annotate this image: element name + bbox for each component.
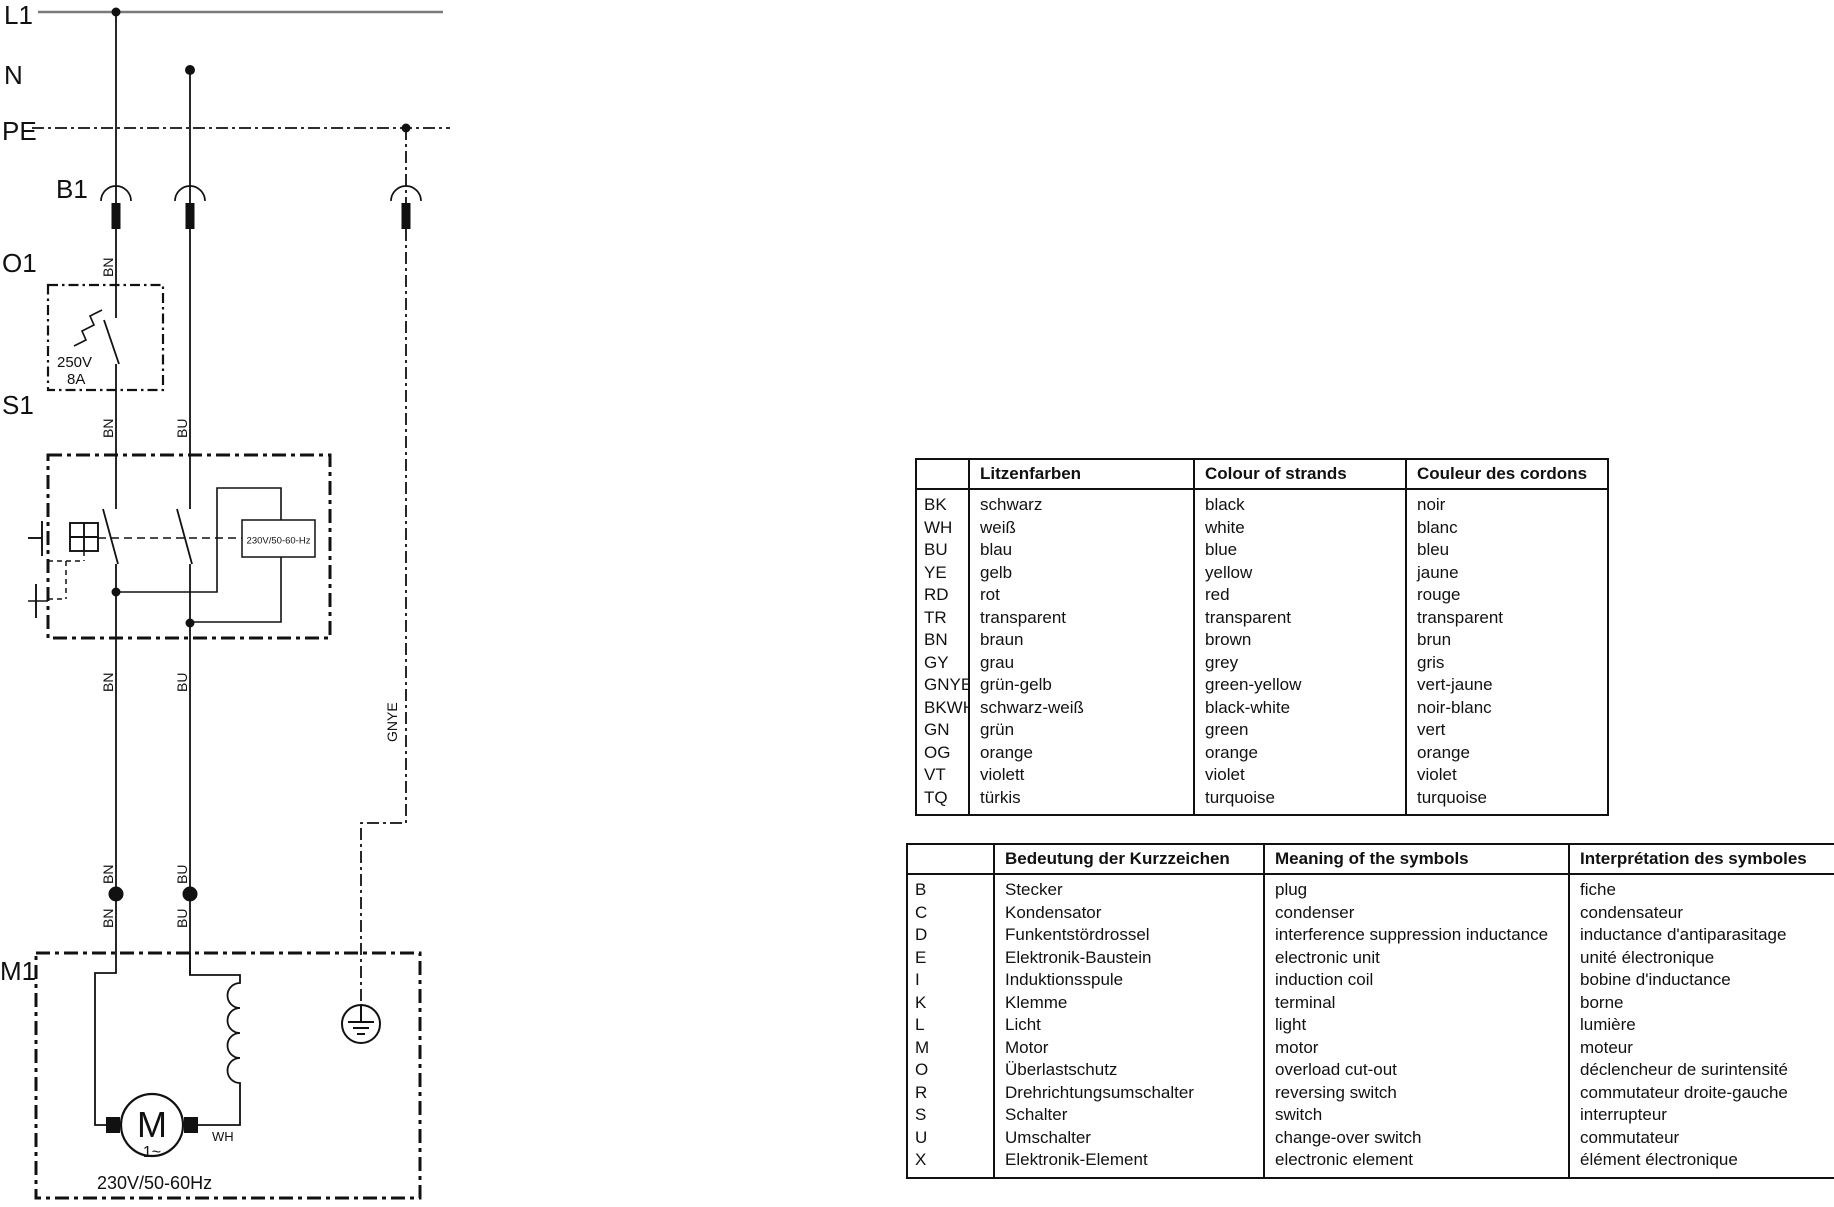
wire-label-bn: BN [100, 419, 116, 438]
table-row: TQtürkisturquoiseturquoise [916, 787, 1608, 816]
table-cell: red [1194, 584, 1406, 607]
table-row: IInduktionsspuleinduction coilbobine d'i… [907, 969, 1834, 992]
table-cell: WH [916, 517, 969, 540]
table-cell: turquoise [1194, 787, 1406, 816]
table-cell: transparent [1406, 607, 1608, 630]
table-cell: schwarz [969, 489, 1194, 517]
bu-junction-dot [186, 619, 195, 628]
table-cell: violet [1406, 764, 1608, 787]
motor-phase: 1~ [143, 1144, 161, 1161]
table-cell: BU [916, 539, 969, 562]
table-row: DFunkentstördrosselinterference suppress… [907, 924, 1834, 947]
col-header-french: Interprétation des symboles [1569, 844, 1834, 874]
table-row: CKondensatorcondensercondensateur [907, 902, 1834, 925]
table-cell: Stecker [994, 874, 1264, 902]
table-cell: violett [969, 764, 1194, 787]
table-cell: GY [916, 652, 969, 675]
ref-label-o1: O1 [2, 248, 37, 278]
table-cell: borne [1569, 992, 1834, 1015]
color-table-header-row: Litzenfarben Colour of strands Couleur d… [916, 459, 1608, 489]
table-cell: bobine d'inductance [1569, 969, 1834, 992]
bus-label-l1: L1 [4, 0, 33, 30]
wire-label-bn: BN [100, 673, 116, 692]
col-header-german: Litzenfarben [969, 459, 1194, 489]
bu-terminal-dot [183, 887, 198, 902]
wire-label-bn: BN [100, 865, 116, 884]
o1-rating-voltage: 250V [57, 354, 92, 371]
col-header-english: Colour of strands [1194, 459, 1406, 489]
table-cell: weiß [969, 517, 1194, 540]
table-cell: electronic element [1264, 1149, 1569, 1178]
table-cell: RD [916, 584, 969, 607]
table-cell: I [907, 969, 994, 992]
table-cell: C [907, 902, 994, 925]
table-cell: blanc [1406, 517, 1608, 540]
wires [95, 12, 406, 1125]
table-cell: induction coil [1264, 969, 1569, 992]
table-row: GNgrüngreenvert [916, 719, 1608, 742]
table-cell: commutateur droite-gauche [1569, 1082, 1834, 1105]
table-cell: unité électronique [1569, 947, 1834, 970]
table-cell: blue [1194, 539, 1406, 562]
electronic-module-label: 230V/50-60-Hz [247, 536, 311, 547]
table-row: BUblaubluebleu [916, 539, 1608, 562]
ref-label-b1: B1 [56, 174, 88, 204]
table-row: SSchalterswitchinterrupteur [907, 1104, 1834, 1127]
table-cell: transparent [969, 607, 1194, 630]
table-cell: overload cut-out [1264, 1059, 1569, 1082]
table-cell: interference suppression inductance [1264, 924, 1569, 947]
s1-switch-block: S1 [2, 390, 330, 638]
table-cell: M [907, 1037, 994, 1060]
table-row: RDrotredrouge [916, 584, 1608, 607]
wire-label-bn: BN [100, 258, 116, 277]
table-row: GNYEgrün-gelbgreen-yellowvert-jaune [916, 674, 1608, 697]
supply-buses: L1 N PE [2, 0, 450, 146]
table-cell: TR [916, 607, 969, 630]
table-cell: X [907, 1149, 994, 1178]
col-header-english: Meaning of the symbols [1264, 844, 1569, 874]
table-cell: motor [1264, 1037, 1569, 1060]
table-cell: change-over switch [1264, 1127, 1569, 1150]
bn-junction-dot [112, 588, 121, 597]
table-cell: brown [1194, 629, 1406, 652]
table-row: OÜberlastschutzoverload cut-outdéclenche… [907, 1059, 1834, 1082]
table-row: XElektronik-Elementelectronic elementélé… [907, 1149, 1834, 1178]
table-cell: rouge [1406, 584, 1608, 607]
switch-actuator-alt-icon [28, 551, 84, 618]
table-cell: condensateur [1569, 902, 1834, 925]
table-cell: noir-blanc [1406, 697, 1608, 720]
ref-label-m1: M1 [0, 956, 36, 986]
table-cell: terminal [1264, 992, 1569, 1015]
o1-rating-current: 8A [67, 371, 85, 388]
motor-rating: 230V/50-60Hz [97, 1173, 212, 1193]
table-cell: fiche [1569, 874, 1834, 902]
wire-label-bu: BU [174, 673, 190, 692]
col-header-code [916, 459, 969, 489]
table-cell: moteur [1569, 1037, 1834, 1060]
table-cell: inductance d'antiparasitage [1569, 924, 1834, 947]
o1-box [48, 285, 163, 390]
table-cell: Kondensator [994, 902, 1264, 925]
table-row: LLichtlightlumière [907, 1014, 1834, 1037]
table-cell: S [907, 1104, 994, 1127]
wire-label-bu: BU [174, 865, 190, 884]
table-cell: U [907, 1127, 994, 1150]
table-row: OGorangeorangeorange [916, 742, 1608, 765]
switch-actuator-icon [28, 521, 98, 556]
thermal-trip-icon [74, 310, 102, 346]
table-cell: grün-gelb [969, 674, 1194, 697]
table-cell: bleu [1406, 539, 1608, 562]
table-cell: turquoise [1406, 787, 1608, 816]
table-cell: Funkentstördrossel [994, 924, 1264, 947]
symbol-table-container: Bedeutung der Kurzzeichen Meaning of the… [906, 843, 1834, 1179]
col-header-code [907, 844, 994, 874]
table-row: EElektronik-Bausteinelectronic unitunité… [907, 947, 1834, 970]
table-cell: blau [969, 539, 1194, 562]
table-cell: rot [969, 584, 1194, 607]
table-cell: O [907, 1059, 994, 1082]
bn-wire-m1-jog [95, 953, 116, 1125]
table-row: KKlemmeterminalborne [907, 992, 1834, 1015]
table-cell: condenser [1264, 902, 1569, 925]
col-header-german: Bedeutung der Kurzzeichen [994, 844, 1264, 874]
table-cell: türkis [969, 787, 1194, 816]
symbol-table-body: BSteckerplugficheCKondensatorcondenserco… [907, 874, 1834, 1178]
table-cell: green [1194, 719, 1406, 742]
o1-contact [104, 320, 119, 364]
table-row: BKschwarzblacknoir [916, 489, 1608, 517]
table-cell: interrupteur [1569, 1104, 1834, 1127]
table-row: UUmschalterchange-over switchcommutateur [907, 1127, 1834, 1150]
table-cell: L [907, 1014, 994, 1037]
table-cell: noir [1406, 489, 1608, 517]
table-cell: Umschalter [994, 1127, 1264, 1150]
m1-motor-block: M1 M 1~ 230V/50-60Hz [0, 953, 420, 1198]
table-cell: TQ [916, 787, 969, 816]
table-cell: BKWH [916, 697, 969, 720]
table-cell: Induktionsspule [994, 969, 1264, 992]
table-row: MMotormotormoteur [907, 1037, 1834, 1060]
ref-label-s1: S1 [2, 390, 34, 420]
wire-label-bn: BN [100, 909, 116, 928]
motor-letter: M [137, 1104, 167, 1145]
table-cell: gelb [969, 562, 1194, 585]
gnye-pe-wire [361, 128, 406, 1004]
wire-label-wh: WH [212, 1129, 234, 1144]
bus-label-pe: PE [2, 116, 37, 146]
plug-pin-icon [112, 203, 411, 229]
plug-connector-icon [101, 186, 421, 201]
table-row: GYgraugreygris [916, 652, 1608, 675]
table-cell: Elektronik-Baustein [994, 947, 1264, 970]
b1-connectors: B1 [56, 174, 421, 229]
table-cell: braun [969, 629, 1194, 652]
table-cell: orange [969, 742, 1194, 765]
table-row: YEgelbyellowjaune [916, 562, 1608, 585]
table-cell: gris [1406, 652, 1608, 675]
table-cell: reversing switch [1264, 1082, 1569, 1105]
table-cell: élément électronique [1569, 1149, 1834, 1178]
table-cell: BN [916, 629, 969, 652]
table-cell: yellow [1194, 562, 1406, 585]
table-cell: light [1264, 1014, 1569, 1037]
table-row: TRtransparenttransparenttransparent [916, 607, 1608, 630]
table-cell: transparent [1194, 607, 1406, 630]
motor-terminal-right [184, 1117, 198, 1133]
table-cell: schwarz-weiß [969, 697, 1194, 720]
table-cell: Klemme [994, 992, 1264, 1015]
table-cell: black-white [1194, 697, 1406, 720]
table-row: VTviolettvioletviolet [916, 764, 1608, 787]
wire-label-bu: BU [174, 419, 190, 438]
table-cell: jaune [1406, 562, 1608, 585]
symbol-table-header-row: Bedeutung der Kurzzeichen Meaning of the… [907, 844, 1834, 874]
table-cell: white [1194, 517, 1406, 540]
table-cell: switch [1264, 1104, 1569, 1127]
earth-ground-icon [342, 1005, 380, 1043]
wire-label-bu: BU [174, 909, 190, 928]
table-cell: E [907, 947, 994, 970]
table-cell: electronic unit [1264, 947, 1569, 970]
table-cell: GN [916, 719, 969, 742]
table-cell: commutateur [1569, 1127, 1834, 1150]
bn-terminal-dot [109, 887, 124, 902]
color-code-table-container: Litzenfarben Colour of strands Couleur d… [915, 458, 1609, 816]
table-cell: R [907, 1082, 994, 1105]
table-cell: Motor [994, 1037, 1264, 1060]
table-cell: Schalter [994, 1104, 1264, 1127]
table-cell: VT [916, 764, 969, 787]
table-cell: GNYE [916, 674, 969, 697]
table-cell: grün [969, 719, 1194, 742]
terminals [109, 887, 198, 902]
table-cell: brun [1406, 629, 1608, 652]
table-cell: lumière [1569, 1014, 1834, 1037]
table-cell: BK [916, 489, 969, 517]
color-code-table: Litzenfarben Colour of strands Couleur d… [915, 458, 1609, 816]
bus-label-n: N [4, 60, 23, 90]
table-cell: vert [1406, 719, 1608, 742]
motor-terminal-left [106, 1117, 120, 1133]
table-cell: OG [916, 742, 969, 765]
table-row: BKWHschwarz-weißblack-whitenoir-blanc [916, 697, 1608, 720]
symbol-table: Bedeutung der Kurzzeichen Meaning of the… [906, 843, 1834, 1179]
table-cell: green-yellow [1194, 674, 1406, 697]
table-cell: orange [1406, 742, 1608, 765]
table-cell: déclencheur de surintensité [1569, 1059, 1834, 1082]
table-row: BSteckerplugfiche [907, 874, 1834, 902]
table-row: RDrehrichtungsumschalterreversing switch… [907, 1082, 1834, 1105]
col-header-french: Couleur des cordons [1406, 459, 1608, 489]
wiring-diagram: L1 N PE B1 [0, 0, 460, 1207]
table-cell: YE [916, 562, 969, 585]
wire-label-gnye: GNYE [384, 702, 400, 742]
table-cell: violet [1194, 764, 1406, 787]
s1-contact-bn [103, 509, 118, 564]
table-cell: grau [969, 652, 1194, 675]
table-cell: K [907, 992, 994, 1015]
table-cell: Elektronik-Element [994, 1149, 1264, 1178]
table-cell: plug [1264, 874, 1569, 902]
table-row: WHweißwhiteblanc [916, 517, 1608, 540]
schematic-page: L1 N PE B1 [0, 0, 1834, 1207]
table-row: BNbraunbrownbrun [916, 629, 1608, 652]
table-cell: Licht [994, 1014, 1264, 1037]
table-cell: Drehrichtungsumschalter [994, 1082, 1264, 1105]
table-cell: Überlastschutz [994, 1059, 1264, 1082]
induction-coil-icon [190, 953, 240, 1125]
table-cell: grey [1194, 652, 1406, 675]
table-cell: B [907, 874, 994, 902]
table-cell: orange [1194, 742, 1406, 765]
color-table-body: BKschwarzblacknoirWHweißwhiteblancBUblau… [916, 489, 1608, 815]
table-cell: black [1194, 489, 1406, 517]
table-cell: D [907, 924, 994, 947]
table-cell: vert-jaune [1406, 674, 1608, 697]
wire-color-labels: BN BN BU BN BU BN BU BN BU GNYE WH [100, 258, 400, 1144]
o1-overload-cutout: O1 250V 8A [2, 248, 163, 390]
s1-contact-bu [177, 509, 192, 564]
